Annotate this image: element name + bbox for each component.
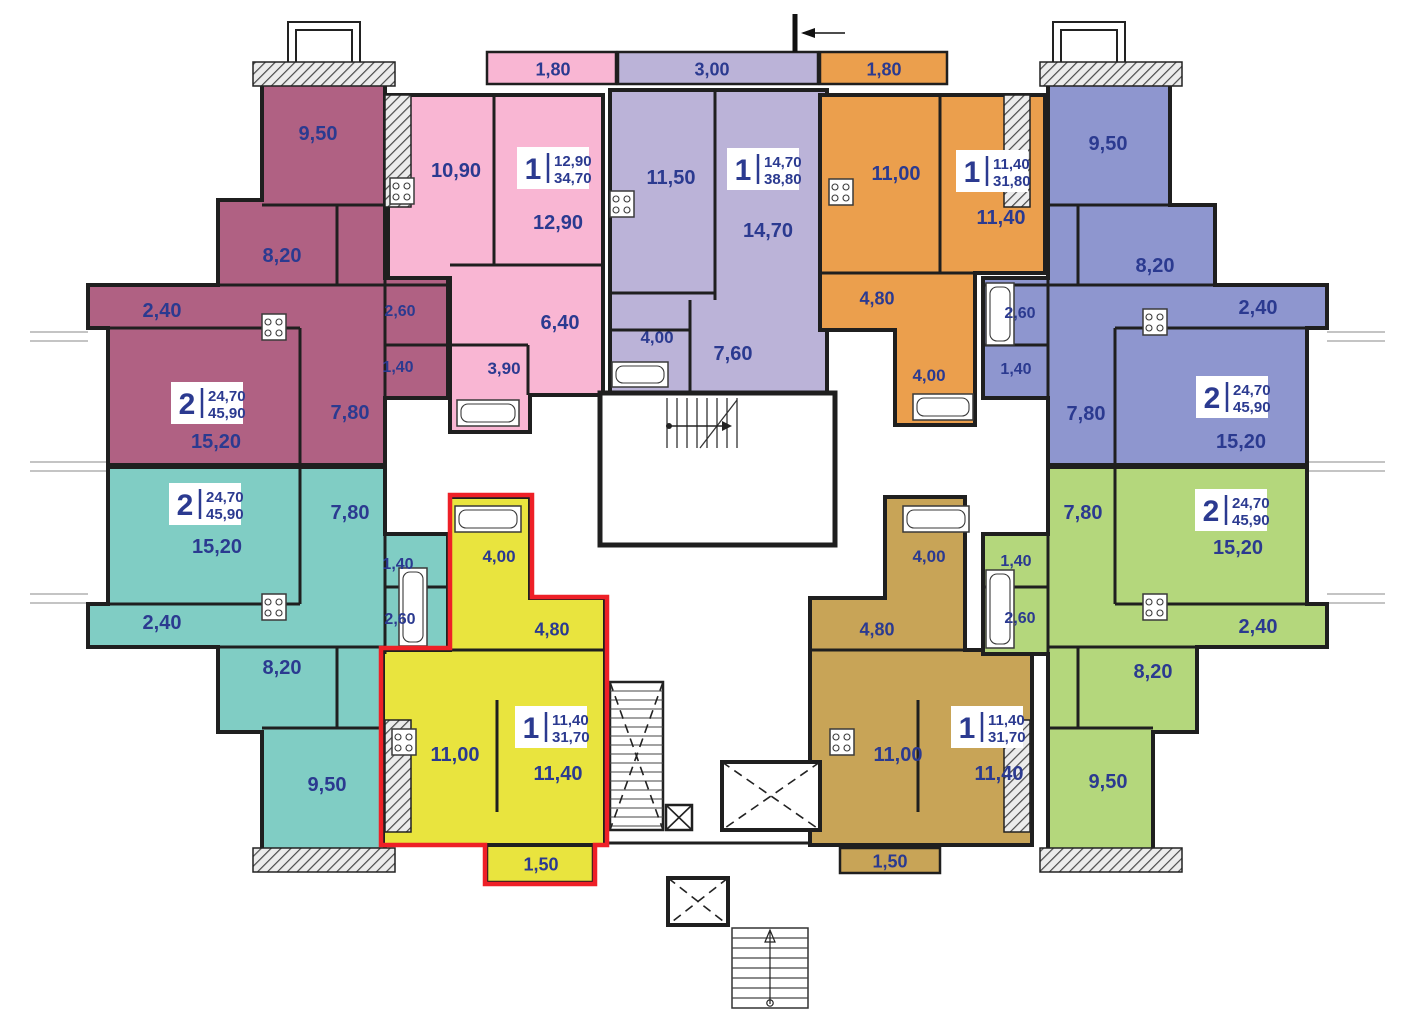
room-area-label: 6,40 — [541, 312, 580, 334]
badge-total-area: 45,90 — [1233, 399, 1271, 416]
hatched-wall — [253, 848, 395, 872]
room-area-label: 8,20 — [263, 245, 302, 267]
room-area-label: 4,80 — [859, 288, 894, 308]
badge-total-area: 45,90 — [1232, 512, 1270, 529]
stove-icon — [830, 729, 854, 755]
room-area-label: 11,00 — [431, 744, 480, 766]
floor-plan: 9,508,202,402,601,407,8015,20224,7045,90… — [0, 0, 1415, 1024]
room-area-label: 7,60 — [714, 343, 753, 365]
room-area-label: 7,80 — [1067, 403, 1106, 425]
badge-living-area: 11,40 — [552, 712, 589, 729]
room-area-label: 9,50 — [1089, 133, 1128, 155]
room-area-label: 14,70 — [743, 220, 793, 242]
room-area-label: 1,40 — [382, 556, 413, 573]
room-area-label: 8,20 — [1136, 255, 1175, 277]
badge-total-area: 45,90 — [208, 405, 246, 422]
apartment-type-badge: 224,7045,90 — [1195, 489, 1270, 531]
room-area-label: 7,80 — [1064, 502, 1103, 524]
apartment-type-badge: 114,7038,80 — [727, 148, 802, 190]
badge-room-count: 2 — [1204, 382, 1221, 415]
room-area-label: 2,60 — [1004, 610, 1035, 627]
badge-living-area: 24,70 — [208, 388, 246, 405]
badge-total-area: 31,70 — [552, 729, 590, 746]
room-area-label: 2,60 — [1004, 305, 1035, 322]
room-area-label: 4,00 — [912, 547, 945, 566]
hatched-wall — [1040, 62, 1182, 86]
room-area-label: 4,80 — [859, 619, 894, 639]
room-area-label: 4,80 — [534, 619, 569, 639]
apartment-type-badge: 111,4031,70 — [951, 706, 1026, 748]
room-area-label: 4,00 — [640, 328, 673, 347]
room-area-label: 11,50 — [647, 167, 696, 189]
badge-living-area: 11,40 — [993, 156, 1030, 173]
apartment-type-badge: 224,7045,90 — [1196, 376, 1271, 418]
hatched-wall — [253, 62, 395, 86]
room-area-label: 9,50 — [308, 774, 347, 796]
apartment-type-badge: 224,7045,90 — [169, 483, 244, 525]
room-area-label: 11,40 — [977, 207, 1026, 229]
badge-room-count: 1 — [964, 156, 981, 189]
room-area-label: 9,50 — [299, 123, 338, 145]
badge-total-area: 31,70 — [988, 729, 1026, 746]
room-area-label: 11,40 — [975, 763, 1024, 785]
badge-room-count: 2 — [179, 388, 196, 421]
room-area-label: 15,20 — [192, 536, 242, 558]
badge-living-area: 24,70 — [206, 489, 244, 506]
badge-room-count: 1 — [959, 712, 976, 745]
room-area-label: 2,40 — [143, 612, 182, 634]
room-area-label: 2,40 — [1239, 297, 1278, 319]
stove-icon — [829, 179, 853, 205]
stove-icon — [1143, 594, 1167, 620]
apartment-type-badge: 112,9034,70 — [517, 147, 592, 189]
badge-living-area: 24,70 — [1232, 495, 1270, 512]
badge-room-count: 2 — [177, 489, 194, 522]
apartment-type-badge: 224,7045,90 — [171, 382, 246, 424]
room-area-label: 4,00 — [912, 366, 945, 385]
room-area-label: 12,90 — [533, 212, 583, 234]
badge-total-area: 38,80 — [764, 171, 802, 188]
roof-stack-inner — [296, 30, 352, 64]
room-area-label: 7,80 — [331, 502, 370, 524]
room-area-label: 1,40 — [1000, 361, 1031, 378]
balcony-area-label: 1,50 — [523, 855, 558, 875]
badge-room-count: 1 — [525, 153, 542, 186]
badge-living-area: 24,70 — [1233, 382, 1271, 399]
room-area-label: 2,60 — [384, 611, 415, 628]
room-area-label: 4,00 — [482, 547, 515, 566]
balcony-area-label: 1,80 — [866, 60, 901, 80]
room-area-label: 8,20 — [1134, 661, 1173, 683]
roof-stack-inner — [1061, 30, 1117, 64]
room-area-label: 11,00 — [872, 163, 921, 185]
room-area-label: 8,20 — [263, 657, 302, 679]
room-area-label: 15,20 — [1216, 431, 1266, 453]
room-area-label: 11,00 — [874, 744, 923, 766]
stove-icon — [390, 178, 414, 204]
room-area-label: 1,40 — [382, 359, 413, 376]
badge-room-count: 1 — [523, 712, 540, 745]
badge-living-area: 12,90 — [554, 153, 592, 170]
hatched-wall — [1040, 848, 1182, 872]
badge-living-area: 14,70 — [764, 154, 802, 171]
room-area-label: 10,90 — [431, 160, 481, 182]
room-area-label: 2,40 — [143, 300, 182, 322]
room-area-label: 15,20 — [191, 431, 241, 453]
room-area-label: 3,90 — [487, 359, 520, 378]
room-area-label: 11,40 — [534, 763, 583, 785]
balcony-area-label: 1,50 — [872, 852, 907, 872]
floor-plan-svg: 9,508,202,402,601,407,8015,20224,7045,90… — [0, 0, 1415, 1024]
badge-living-area: 11,40 — [988, 712, 1025, 729]
badge-total-area: 34,70 — [554, 170, 592, 187]
stove-icon — [262, 594, 286, 620]
apartment-type-badge: 111,4031,70 — [515, 706, 590, 748]
stove-icon — [610, 191, 634, 217]
room-area-label: 15,20 — [1213, 537, 1263, 559]
badge-total-area: 31,80 — [993, 173, 1031, 190]
stove-icon — [1143, 309, 1167, 335]
stove-icon — [262, 314, 286, 340]
balcony-area-label: 3,00 — [694, 60, 729, 80]
badge-total-area: 45,90 — [206, 506, 244, 523]
room-area-label: 2,60 — [384, 303, 415, 320]
room-area-label: 1,40 — [1000, 553, 1031, 570]
apartment-type-badge: 111,4031,80 — [956, 150, 1031, 192]
badge-room-count: 1 — [735, 154, 752, 187]
balcony-area-label: 1,80 — [535, 60, 570, 80]
room-area-label: 7,80 — [331, 402, 370, 424]
room-area-label: 2,40 — [1239, 616, 1278, 638]
stove-icon — [392, 729, 416, 755]
badge-room-count: 2 — [1203, 495, 1220, 528]
room-area-label: 9,50 — [1089, 771, 1128, 793]
